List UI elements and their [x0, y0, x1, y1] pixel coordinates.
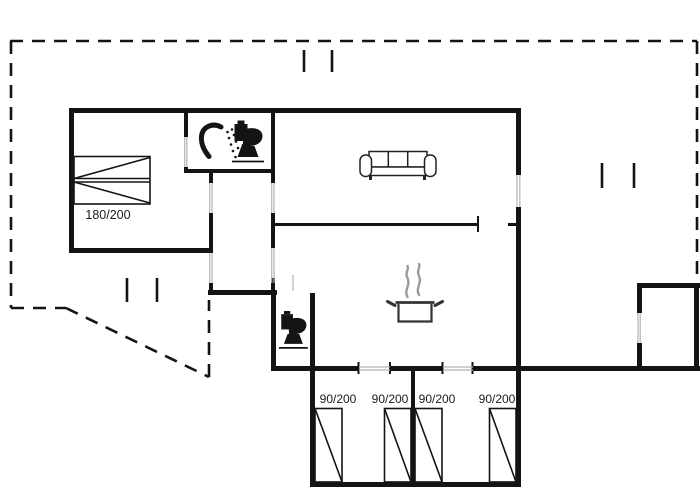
- wall-shed-left-b: [637, 343, 642, 370]
- living-room-window: [517, 175, 520, 207]
- single-bed-size-label-3: 90/200: [415, 392, 459, 406]
- boundary-diagonal: [66, 308, 209, 377]
- wall-south-a: [272, 366, 359, 371]
- wall-hall-right-b: [271, 213, 275, 248]
- door-tick-4: [472, 362, 474, 374]
- wall-hall-left-a: [209, 173, 213, 183]
- single-beds: [315, 409, 516, 483]
- kitchen-door-opening: [272, 248, 274, 283]
- double-bed-icon: [74, 157, 150, 205]
- single-bed-icon-1: [315, 409, 342, 483]
- wall-divider-end-tick: [477, 216, 479, 232]
- single-bed-icon-3: [415, 409, 442, 483]
- sofa-backrest: [369, 152, 427, 168]
- toilet-icon-wc: [279, 311, 308, 348]
- wall-hall-left-b: [209, 213, 213, 253]
- single-bed-size-label-1: 90/200: [316, 392, 360, 406]
- wall-living-kitchen-divider: [275, 223, 479, 226]
- single-bed-icon-2: [385, 409, 412, 483]
- door-tick-1: [358, 362, 360, 374]
- toilet-icon-bathroom: [232, 121, 264, 162]
- cooking-pot-icon: [388, 264, 443, 322]
- double-bed-diagonal-2: [74, 182, 150, 203]
- bathroom-door-opening: [185, 137, 187, 167]
- wall-right-upper: [516, 108, 521, 175]
- double-bed-outline: [74, 157, 150, 205]
- wall-hall-right-a: [271, 108, 275, 183]
- door-tick-2: [389, 362, 391, 374]
- wall-wc-right: [310, 293, 315, 370]
- single-bed-icon-4: [490, 409, 517, 483]
- pot-handle-right: [435, 302, 443, 306]
- floor-plan: 180/200 90/200 90/200 90/200 90/200: [0, 0, 700, 500]
- single-bed-size-label-2: 90/200: [368, 392, 412, 406]
- wall-bathroom-left-a: [184, 108, 188, 137]
- bunkroom2-door-opening: [443, 367, 473, 370]
- double-bed-diagonal-1: [74, 158, 150, 179]
- bedroom-door-opening: [210, 183, 212, 213]
- pot-body: [399, 304, 432, 322]
- sofa-arm-right: [425, 155, 437, 177]
- wall-shed-top: [637, 283, 700, 288]
- wall-wc-left: [271, 290, 276, 371]
- wall-shed-left-a: [637, 283, 642, 313]
- sofa-arm-left: [360, 155, 372, 177]
- bunkroom1-door-opening: [359, 367, 390, 370]
- double-bed-size-label: 180/200: [78, 208, 138, 222]
- wall-top: [69, 108, 521, 113]
- sofa-seat: [368, 167, 429, 176]
- wall-south-b: [390, 366, 443, 371]
- wall-south-c: [473, 366, 700, 371]
- single-bed-size-label-4: 90/200: [475, 392, 519, 406]
- wall-divider-stub: [508, 223, 517, 226]
- door-tick-3: [442, 362, 444, 374]
- wall-bathroom-bottom: [184, 169, 275, 173]
- shed-door-opening: [638, 313, 640, 343]
- entrance-door-opening: [210, 253, 212, 283]
- floor-plan-drawing: [0, 0, 700, 500]
- steam-icon: [406, 264, 420, 297]
- wall-wc-top: [208, 290, 277, 295]
- shower-hose: [201, 125, 221, 156]
- living-room-door-opening: [272, 183, 274, 213]
- wall-hall-left-c: [209, 283, 213, 295]
- wall-shed-right: [694, 283, 699, 371]
- wall-bedroom-bottom: [69, 248, 213, 253]
- sofa-icon: [360, 152, 436, 181]
- pot-handle-left: [388, 302, 396, 306]
